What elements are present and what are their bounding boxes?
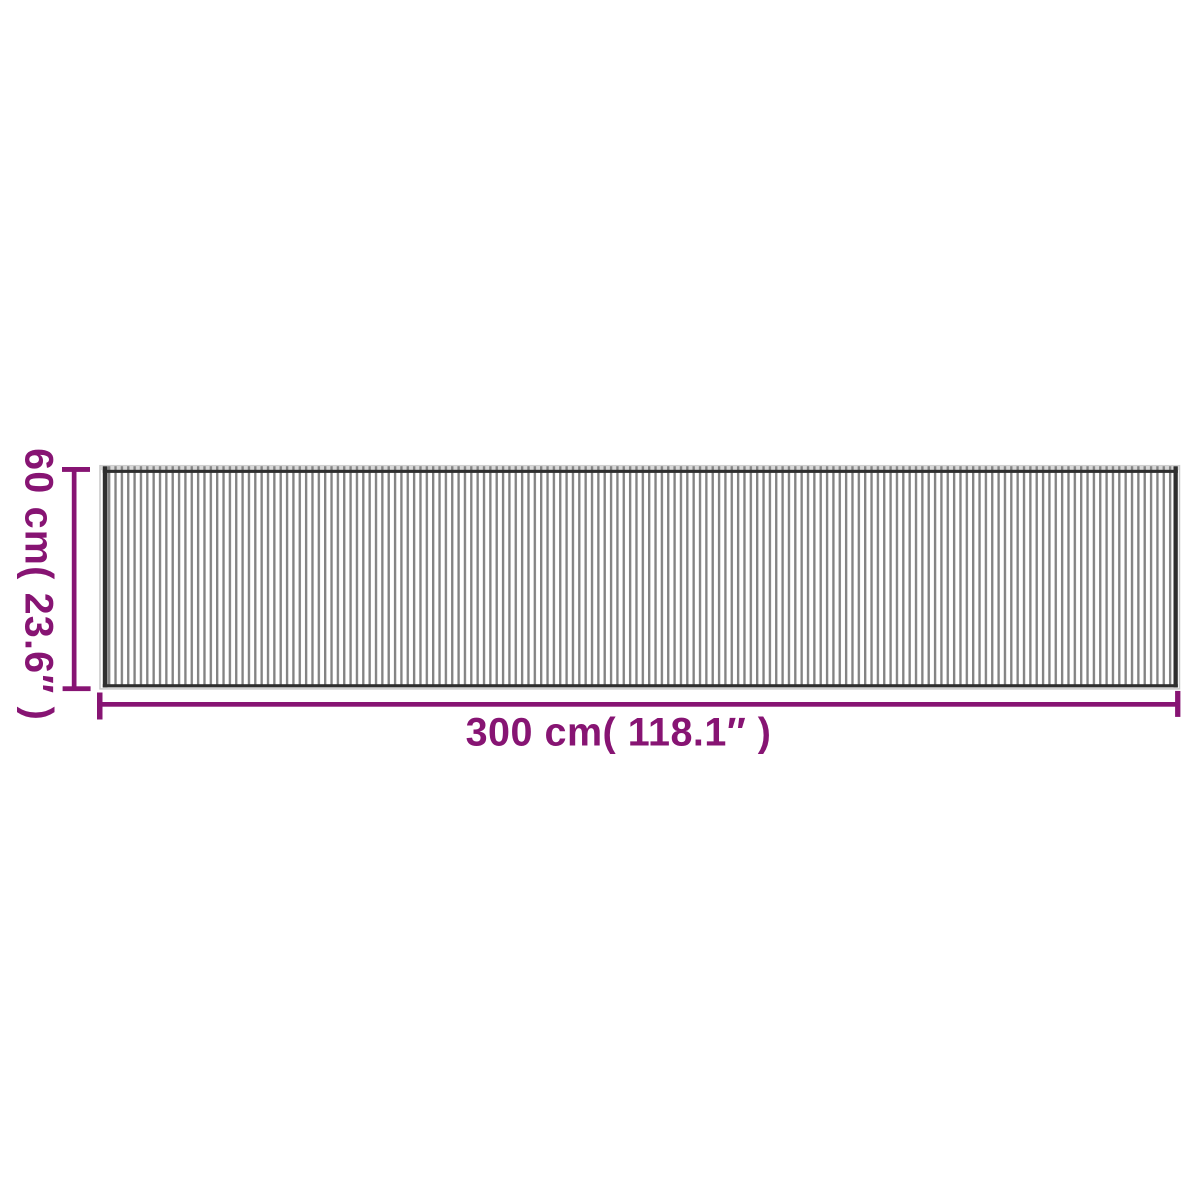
svg-text:300 cm( 118.1″ ): 300 cm( 118.1″ )	[466, 711, 772, 755]
svg-text:60 cm( 23.6″ ): 60 cm( 23.6″ )	[17, 448, 61, 721]
